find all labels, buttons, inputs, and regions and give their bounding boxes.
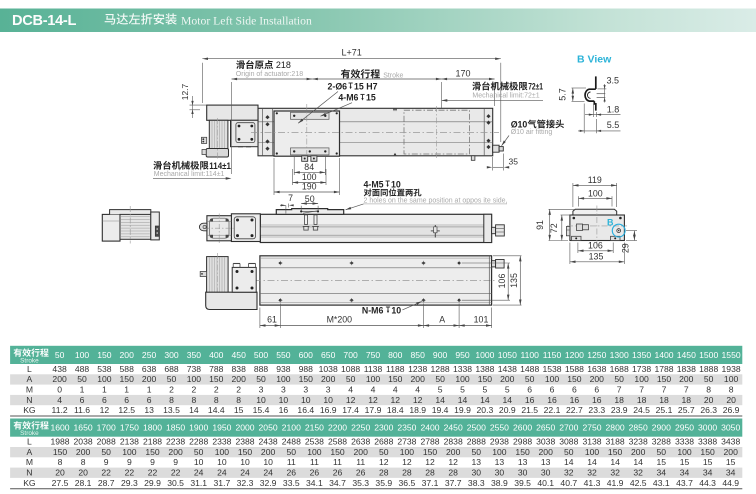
svg-text:4: 4 (415, 385, 420, 395)
svg-text:38.9: 38.9 (491, 478, 508, 488)
svg-text:100: 100 (492, 447, 507, 457)
svg-text:1788: 1788 (654, 364, 673, 374)
svg-text:7: 7 (662, 385, 667, 395)
svg-text:600: 600 (299, 350, 314, 360)
svg-text:23.3: 23.3 (588, 405, 605, 415)
svg-text:35.9: 35.9 (375, 478, 392, 488)
svg-text:18: 18 (659, 395, 669, 405)
svg-text:3: 3 (326, 385, 331, 395)
svg-text:30: 30 (518, 468, 528, 478)
svg-text:12: 12 (346, 395, 356, 405)
svg-text:13: 13 (472, 457, 482, 467)
svg-text:2538: 2538 (305, 437, 324, 447)
svg-text:1238: 1238 (408, 364, 427, 374)
svg-text:29.9: 29.9 (144, 478, 161, 488)
svg-text:1: 1 (102, 385, 107, 395)
svg-text:100: 100 (588, 188, 603, 198)
svg-text:N-M6: N-M6 (362, 305, 384, 315)
svg-text:950: 950 (455, 350, 470, 360)
svg-text:32: 32 (564, 468, 574, 478)
svg-text:2400: 2400 (420, 423, 439, 433)
svg-text:2600: 2600 (513, 423, 532, 433)
svg-text:42.5: 42.5 (630, 478, 647, 488)
svg-text:3: 3 (281, 385, 286, 395)
svg-text:3088: 3088 (559, 437, 578, 447)
svg-text:3: 3 (259, 385, 264, 395)
svg-text:84: 84 (304, 162, 314, 172)
svg-text:41.9: 41.9 (607, 478, 624, 488)
svg-text:1100: 1100 (520, 350, 539, 360)
svg-text:22: 22 (125, 468, 135, 478)
svg-text:12: 12 (368, 395, 378, 405)
svg-text:1938: 1938 (722, 364, 741, 374)
svg-text:36.5: 36.5 (399, 478, 416, 488)
svg-text:16: 16 (279, 405, 289, 415)
svg-text:12: 12 (425, 457, 435, 467)
svg-text:4: 4 (393, 385, 398, 395)
svg-text:50: 50 (77, 374, 87, 384)
svg-text:20: 20 (78, 468, 88, 478)
svg-text:32.3: 32.3 (237, 478, 254, 488)
svg-text:28.7: 28.7 (98, 478, 115, 488)
svg-text:101: 101 (474, 315, 489, 325)
svg-text:16.4: 16.4 (297, 405, 314, 415)
svg-text:1688: 1688 (610, 364, 629, 374)
svg-text:72±1: 72±1 (528, 82, 543, 92)
svg-text:43.7: 43.7 (676, 478, 693, 488)
svg-text:150: 150 (478, 374, 493, 384)
svg-text:16: 16 (570, 395, 580, 405)
svg-text:KG: KG (23, 405, 36, 415)
svg-text:12: 12 (413, 395, 423, 405)
svg-text:15: 15 (366, 93, 376, 103)
svg-text:16.9: 16.9 (320, 405, 337, 415)
svg-text:200: 200 (590, 374, 605, 384)
svg-text:24: 24 (194, 468, 204, 478)
svg-text:50: 50 (379, 447, 389, 457)
svg-text:2: 2 (169, 385, 174, 395)
svg-text:170: 170 (455, 68, 470, 78)
svg-text:2650: 2650 (536, 423, 555, 433)
svg-text:6: 6 (80, 395, 85, 405)
svg-text:50: 50 (167, 374, 177, 384)
svg-text:6: 6 (124, 395, 129, 405)
svg-text:12.7: 12.7 (180, 83, 190, 100)
svg-text:3338: 3338 (675, 437, 694, 447)
svg-text:6: 6 (527, 385, 532, 395)
svg-text:2688: 2688 (374, 437, 393, 447)
svg-text:32: 32 (587, 468, 597, 478)
svg-text:1650: 1650 (74, 423, 93, 433)
svg-text:8: 8 (169, 395, 174, 405)
svg-text:22.7: 22.7 (566, 405, 583, 415)
svg-text:150: 150 (423, 447, 438, 457)
svg-text:32: 32 (610, 468, 620, 478)
svg-text:150: 150 (53, 447, 68, 457)
svg-text:16: 16 (525, 395, 535, 405)
svg-text:8: 8 (729, 385, 734, 395)
svg-text:2388: 2388 (235, 437, 254, 447)
svg-text:2788: 2788 (420, 437, 439, 447)
svg-text:114±1: 114±1 (209, 161, 231, 171)
svg-text:28: 28 (402, 468, 412, 478)
svg-text:7: 7 (617, 385, 622, 395)
svg-text:2988: 2988 (513, 437, 532, 447)
svg-text:10: 10 (217, 457, 227, 467)
svg-text:10: 10 (194, 457, 204, 467)
svg-text:M: M (26, 385, 33, 395)
svg-text:1500: 1500 (699, 350, 718, 360)
svg-text:4-M5: 4-M5 (364, 179, 384, 189)
svg-text:438: 438 (52, 364, 67, 374)
svg-text:3388: 3388 (698, 437, 717, 447)
svg-text:1: 1 (80, 385, 85, 395)
svg-text:15: 15 (657, 457, 667, 467)
svg-text:50: 50 (305, 194, 315, 204)
svg-text:A: A (27, 374, 33, 384)
svg-text:2488: 2488 (282, 437, 301, 447)
svg-text:7: 7 (684, 385, 689, 395)
svg-text:4-M6: 4-M6 (338, 93, 358, 103)
svg-text:1850: 1850 (166, 423, 185, 433)
svg-text:22: 22 (101, 468, 111, 478)
svg-text:30: 30 (495, 468, 505, 478)
svg-text:21.5: 21.5 (521, 405, 538, 415)
svg-text:100: 100 (455, 374, 470, 384)
svg-text:1: 1 (147, 385, 152, 395)
svg-text:3.5: 3.5 (607, 75, 620, 85)
svg-text:190: 190 (302, 182, 317, 192)
svg-text:2300: 2300 (374, 423, 393, 433)
svg-text:1750: 1750 (120, 423, 139, 433)
svg-text:14.4: 14.4 (208, 405, 225, 415)
svg-text:26: 26 (333, 468, 343, 478)
svg-text:17.9: 17.9 (365, 405, 382, 415)
svg-text:18.9: 18.9 (409, 405, 426, 415)
svg-text:3038: 3038 (536, 437, 555, 447)
svg-text:3188: 3188 (606, 437, 625, 447)
svg-text:22: 22 (148, 468, 158, 478)
svg-text:44.3: 44.3 (699, 478, 716, 488)
svg-text:6: 6 (550, 385, 555, 395)
svg-text:15: 15 (726, 457, 736, 467)
svg-text:72: 72 (549, 223, 559, 233)
svg-text:14: 14 (480, 395, 490, 405)
svg-text:1950: 1950 (212, 423, 231, 433)
svg-text:2950: 2950 (675, 423, 694, 433)
svg-text:23.9: 23.9 (611, 405, 628, 415)
svg-text:2: 2 (214, 385, 219, 395)
svg-text:200: 200 (52, 374, 67, 384)
svg-text:6: 6 (594, 385, 599, 395)
svg-text:200: 200 (120, 350, 135, 360)
svg-text:9: 9 (173, 457, 178, 467)
svg-text:2038: 2038 (74, 437, 93, 447)
svg-text:11: 11 (287, 457, 296, 467)
svg-text:10: 10 (323, 395, 333, 405)
svg-text:838: 838 (232, 364, 247, 374)
svg-text:2: 2 (236, 385, 241, 395)
svg-text:2338: 2338 (212, 437, 231, 447)
svg-text:18.4: 18.4 (387, 405, 404, 415)
svg-text:Mechanical limit:114±1: Mechanical limit:114±1 (154, 171, 225, 178)
svg-text:500: 500 (254, 350, 269, 360)
svg-text:18: 18 (637, 395, 647, 405)
svg-text:106: 106 (497, 274, 507, 289)
svg-text:12.5: 12.5 (118, 405, 135, 415)
svg-text:24: 24 (240, 468, 250, 478)
svg-text:B: B (607, 217, 614, 227)
svg-text:218: 218 (276, 60, 291, 70)
svg-text:19.4: 19.4 (432, 405, 449, 415)
svg-text:2350: 2350 (397, 423, 416, 433)
svg-text:350: 350 (187, 350, 202, 360)
svg-text:2588: 2588 (328, 437, 347, 447)
svg-text:9: 9 (150, 457, 155, 467)
svg-text:11: 11 (333, 457, 342, 467)
svg-text:A: A (27, 447, 33, 457)
svg-text:2088: 2088 (97, 437, 116, 447)
svg-text:1150: 1150 (543, 350, 562, 360)
svg-text:1488: 1488 (520, 364, 539, 374)
svg-text:100: 100 (366, 374, 381, 384)
svg-text:37.7: 37.7 (445, 478, 462, 488)
svg-text:200: 200 (168, 447, 183, 457)
svg-text:938: 938 (276, 364, 291, 374)
svg-text:135: 135 (589, 252, 604, 262)
svg-text:50: 50 (101, 447, 111, 457)
svg-text:300: 300 (164, 350, 179, 360)
svg-text:2550: 2550 (490, 423, 509, 433)
svg-text:33.5: 33.5 (283, 478, 300, 488)
svg-text:50: 50 (194, 447, 204, 457)
svg-text:L: L (27, 437, 32, 447)
svg-text:15.4: 15.4 (253, 405, 270, 415)
svg-text:20: 20 (704, 395, 714, 405)
svg-text:2438: 2438 (259, 437, 278, 447)
svg-text:150: 150 (238, 447, 253, 457)
svg-text:2: 2 (192, 385, 197, 395)
svg-text:34.1: 34.1 (306, 478, 323, 488)
svg-text:1338: 1338 (453, 364, 472, 374)
svg-text:200: 200 (142, 374, 157, 384)
svg-text:4: 4 (57, 395, 62, 405)
svg-text:10: 10 (391, 179, 401, 189)
svg-text:50: 50 (657, 447, 667, 457)
svg-text:538: 538 (97, 364, 112, 374)
svg-text:4: 4 (348, 385, 353, 395)
svg-text:28: 28 (448, 468, 458, 478)
svg-text:200: 200 (446, 447, 461, 457)
svg-text:10: 10 (256, 395, 266, 405)
svg-text:6: 6 (147, 395, 152, 405)
svg-text:750: 750 (366, 350, 381, 360)
svg-text:20: 20 (726, 395, 736, 405)
svg-text:200: 200 (232, 374, 247, 384)
svg-text:34: 34 (703, 468, 713, 478)
svg-text:5: 5 (460, 385, 465, 395)
svg-text:15 H7: 15 H7 (354, 81, 378, 91)
svg-text:150: 150 (330, 447, 345, 457)
svg-text:200: 200 (500, 374, 515, 384)
svg-text:8: 8 (236, 395, 241, 405)
svg-text:38.3: 38.3 (468, 478, 485, 488)
svg-text:35: 35 (509, 157, 519, 167)
svg-text:100: 100 (307, 447, 322, 457)
svg-text:700: 700 (343, 350, 358, 360)
svg-text:12: 12 (402, 457, 412, 467)
svg-text:2750: 2750 (582, 423, 601, 433)
svg-text:2238: 2238 (166, 437, 185, 447)
svg-text:15: 15 (703, 457, 713, 467)
svg-text:22: 22 (171, 468, 181, 478)
svg-text:13: 13 (518, 457, 528, 467)
svg-text:13: 13 (144, 405, 154, 415)
svg-text:50: 50 (564, 447, 574, 457)
svg-text:20.9: 20.9 (499, 405, 516, 415)
svg-text:26.3: 26.3 (700, 405, 717, 415)
svg-text:5.7: 5.7 (557, 88, 567, 101)
svg-text:40.7: 40.7 (560, 478, 577, 488)
svg-text:12: 12 (391, 395, 401, 405)
svg-text:1638: 1638 (587, 364, 606, 374)
svg-text:2000: 2000 (235, 423, 254, 433)
svg-text:DCB-14-L: DCB-14-L (12, 13, 76, 29)
svg-text:Ø10 air fitting: Ø10 air fitting (511, 129, 553, 136)
svg-text:2288: 2288 (189, 437, 208, 447)
svg-text:Mechanical limit:72±1: Mechanical limit:72±1 (472, 93, 539, 100)
svg-text:28: 28 (379, 468, 389, 478)
svg-text:200: 200 (724, 447, 739, 457)
svg-text:788: 788 (209, 364, 224, 374)
svg-text:31.7: 31.7 (214, 478, 231, 488)
svg-text:2138: 2138 (120, 437, 139, 447)
svg-text:100: 100 (122, 447, 137, 457)
svg-text:50: 50 (256, 374, 266, 384)
svg-text:50: 50 (346, 374, 356, 384)
svg-text:2450: 2450 (444, 423, 463, 433)
svg-text:Motor Left Side Installation: Motor Left Side Installation (181, 14, 312, 27)
svg-text:3238: 3238 (629, 437, 648, 447)
svg-text:1738: 1738 (632, 364, 651, 374)
svg-text:25.7: 25.7 (678, 405, 695, 415)
svg-text:1838: 1838 (677, 364, 696, 374)
svg-text:150: 150 (97, 350, 112, 360)
svg-text:850: 850 (411, 350, 426, 360)
svg-text:2888: 2888 (467, 437, 486, 447)
svg-text:2188: 2188 (143, 437, 162, 447)
svg-text:1388: 1388 (475, 364, 494, 374)
svg-text:37.1: 37.1 (422, 478, 439, 488)
svg-text:3288: 3288 (652, 437, 671, 447)
svg-text:9: 9 (104, 457, 109, 467)
svg-text:3000: 3000 (698, 423, 717, 433)
svg-text:13: 13 (495, 457, 505, 467)
svg-text:150: 150 (700, 447, 715, 457)
svg-text:1050: 1050 (498, 350, 517, 360)
svg-text:100: 100 (276, 374, 291, 384)
svg-text:2738: 2738 (397, 437, 416, 447)
svg-text:91: 91 (535, 220, 545, 230)
svg-text:24: 24 (217, 468, 227, 478)
svg-text:4: 4 (371, 385, 376, 395)
svg-text:N: N (26, 395, 32, 405)
svg-text:2938: 2938 (490, 437, 509, 447)
svg-text:KG: KG (23, 478, 36, 488)
svg-text:150: 150 (388, 374, 403, 384)
svg-text:M*200: M*200 (327, 315, 353, 325)
svg-text:16: 16 (592, 395, 602, 405)
svg-text:2800: 2800 (606, 423, 625, 433)
svg-text:18: 18 (614, 395, 624, 405)
svg-text:400: 400 (209, 350, 224, 360)
svg-text:29.3: 29.3 (121, 478, 138, 488)
svg-text:34: 34 (680, 468, 690, 478)
svg-text:988: 988 (299, 364, 314, 374)
svg-text:9: 9 (127, 457, 132, 467)
svg-text:2500: 2500 (467, 423, 486, 433)
svg-text:738: 738 (187, 364, 202, 374)
svg-text:6: 6 (572, 385, 577, 395)
svg-text:2638: 2638 (351, 437, 370, 447)
svg-text:10: 10 (240, 457, 250, 467)
svg-text:3438: 3438 (721, 437, 740, 447)
svg-text:1138: 1138 (364, 364, 383, 374)
svg-text:3: 3 (303, 385, 308, 395)
svg-text:26: 26 (310, 468, 320, 478)
svg-text:1088: 1088 (341, 364, 360, 374)
svg-text:14: 14 (503, 395, 513, 405)
svg-text:22.1: 22.1 (544, 405, 561, 415)
svg-text:29: 29 (620, 243, 630, 253)
svg-text:39.5: 39.5 (514, 478, 531, 488)
svg-text:50: 50 (435, 374, 445, 384)
svg-text:14: 14 (610, 457, 620, 467)
svg-text:30: 30 (472, 468, 482, 478)
svg-text:10: 10 (301, 395, 311, 405)
svg-text:2150: 2150 (305, 423, 324, 433)
svg-text:5: 5 (438, 385, 443, 395)
svg-text:150: 150 (209, 374, 224, 384)
svg-text:200: 200 (354, 447, 369, 457)
svg-text:1350: 1350 (632, 350, 651, 360)
svg-text:1888: 1888 (699, 364, 718, 374)
svg-text:900: 900 (433, 350, 448, 360)
svg-text:100: 100 (585, 447, 600, 457)
svg-text:8: 8 (706, 385, 711, 395)
svg-text:200: 200 (411, 374, 426, 384)
svg-text:34: 34 (726, 468, 736, 478)
svg-text:7: 7 (639, 385, 644, 395)
svg-text:1550: 1550 (722, 350, 741, 360)
svg-text:41.3: 41.3 (584, 478, 601, 488)
svg-text:50: 50 (287, 447, 297, 457)
svg-text:14: 14 (587, 457, 597, 467)
svg-text:M: M (26, 457, 33, 467)
svg-text:1000: 1000 (475, 350, 494, 360)
svg-text:1400: 1400 (654, 350, 673, 360)
svg-text:1450: 1450 (677, 350, 696, 360)
svg-text:200: 200 (539, 447, 554, 457)
svg-text:2700: 2700 (559, 423, 578, 433)
svg-text:2100: 2100 (282, 423, 301, 433)
svg-text:26: 26 (287, 468, 297, 478)
svg-text:3050: 3050 (721, 423, 740, 433)
svg-text:28.1: 28.1 (75, 478, 92, 488)
svg-text:13: 13 (541, 457, 551, 467)
svg-text:27.5: 27.5 (52, 478, 69, 488)
svg-text:2900: 2900 (652, 423, 671, 433)
